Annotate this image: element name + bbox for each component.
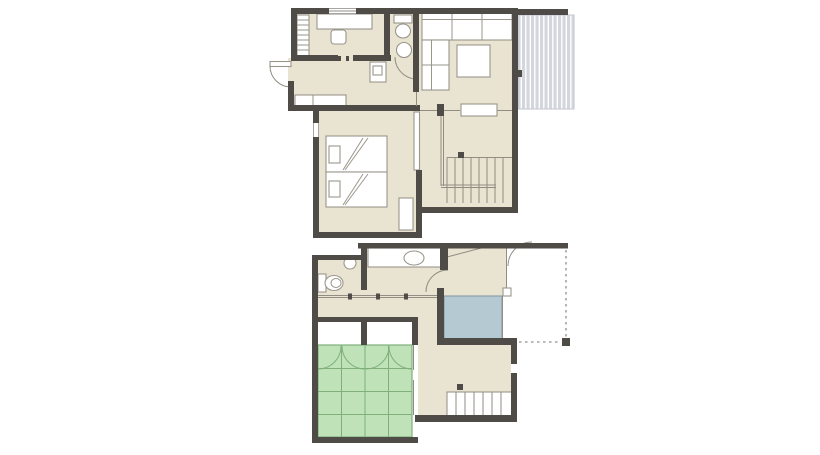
eave-column bbox=[562, 338, 570, 346]
bed-2 bbox=[326, 172, 387, 207]
corner-pillar bbox=[503, 288, 511, 296]
bathroom bbox=[444, 296, 503, 339]
bookshelf bbox=[297, 15, 309, 57]
closet-right bbox=[367, 322, 412, 345]
floor-plan-canvas bbox=[0, 0, 820, 455]
column-post bbox=[458, 152, 464, 158]
bed-1 bbox=[326, 136, 387, 172]
lower-floor-plan bbox=[312, 242, 570, 443]
wood-deck bbox=[518, 15, 574, 109]
floor-plan-drawing bbox=[0, 0, 820, 455]
desk bbox=[317, 14, 372, 29]
closet-left bbox=[318, 322, 361, 345]
bedroom-sliding-door bbox=[414, 112, 420, 170]
upper-floor-plan bbox=[270, 8, 574, 238]
round-sink-icon bbox=[397, 43, 412, 58]
toilet-bowl-icon bbox=[325, 276, 343, 291]
toilet-tank-icon bbox=[394, 15, 412, 23]
bathtub-area bbox=[444, 296, 502, 339]
washer-unit bbox=[370, 62, 386, 82]
vanity-sink-icon bbox=[404, 251, 424, 265]
entry-door-leaf bbox=[270, 62, 291, 67]
pillow bbox=[329, 181, 340, 197]
stair-window bbox=[461, 104, 497, 116]
washer-icon bbox=[373, 66, 382, 75]
column-post bbox=[457, 384, 463, 390]
entry-door-swing-arc bbox=[270, 66, 291, 87]
stair-hall-window bbox=[511, 364, 517, 373]
chair bbox=[331, 30, 346, 44]
toilet-bowl-icon bbox=[396, 24, 411, 38]
coffee-table bbox=[457, 45, 490, 77]
bedroom-window bbox=[314, 123, 319, 137]
nightstand bbox=[399, 198, 413, 230]
pillow bbox=[329, 146, 340, 163]
porch-eave-outline bbox=[519, 250, 570, 346]
